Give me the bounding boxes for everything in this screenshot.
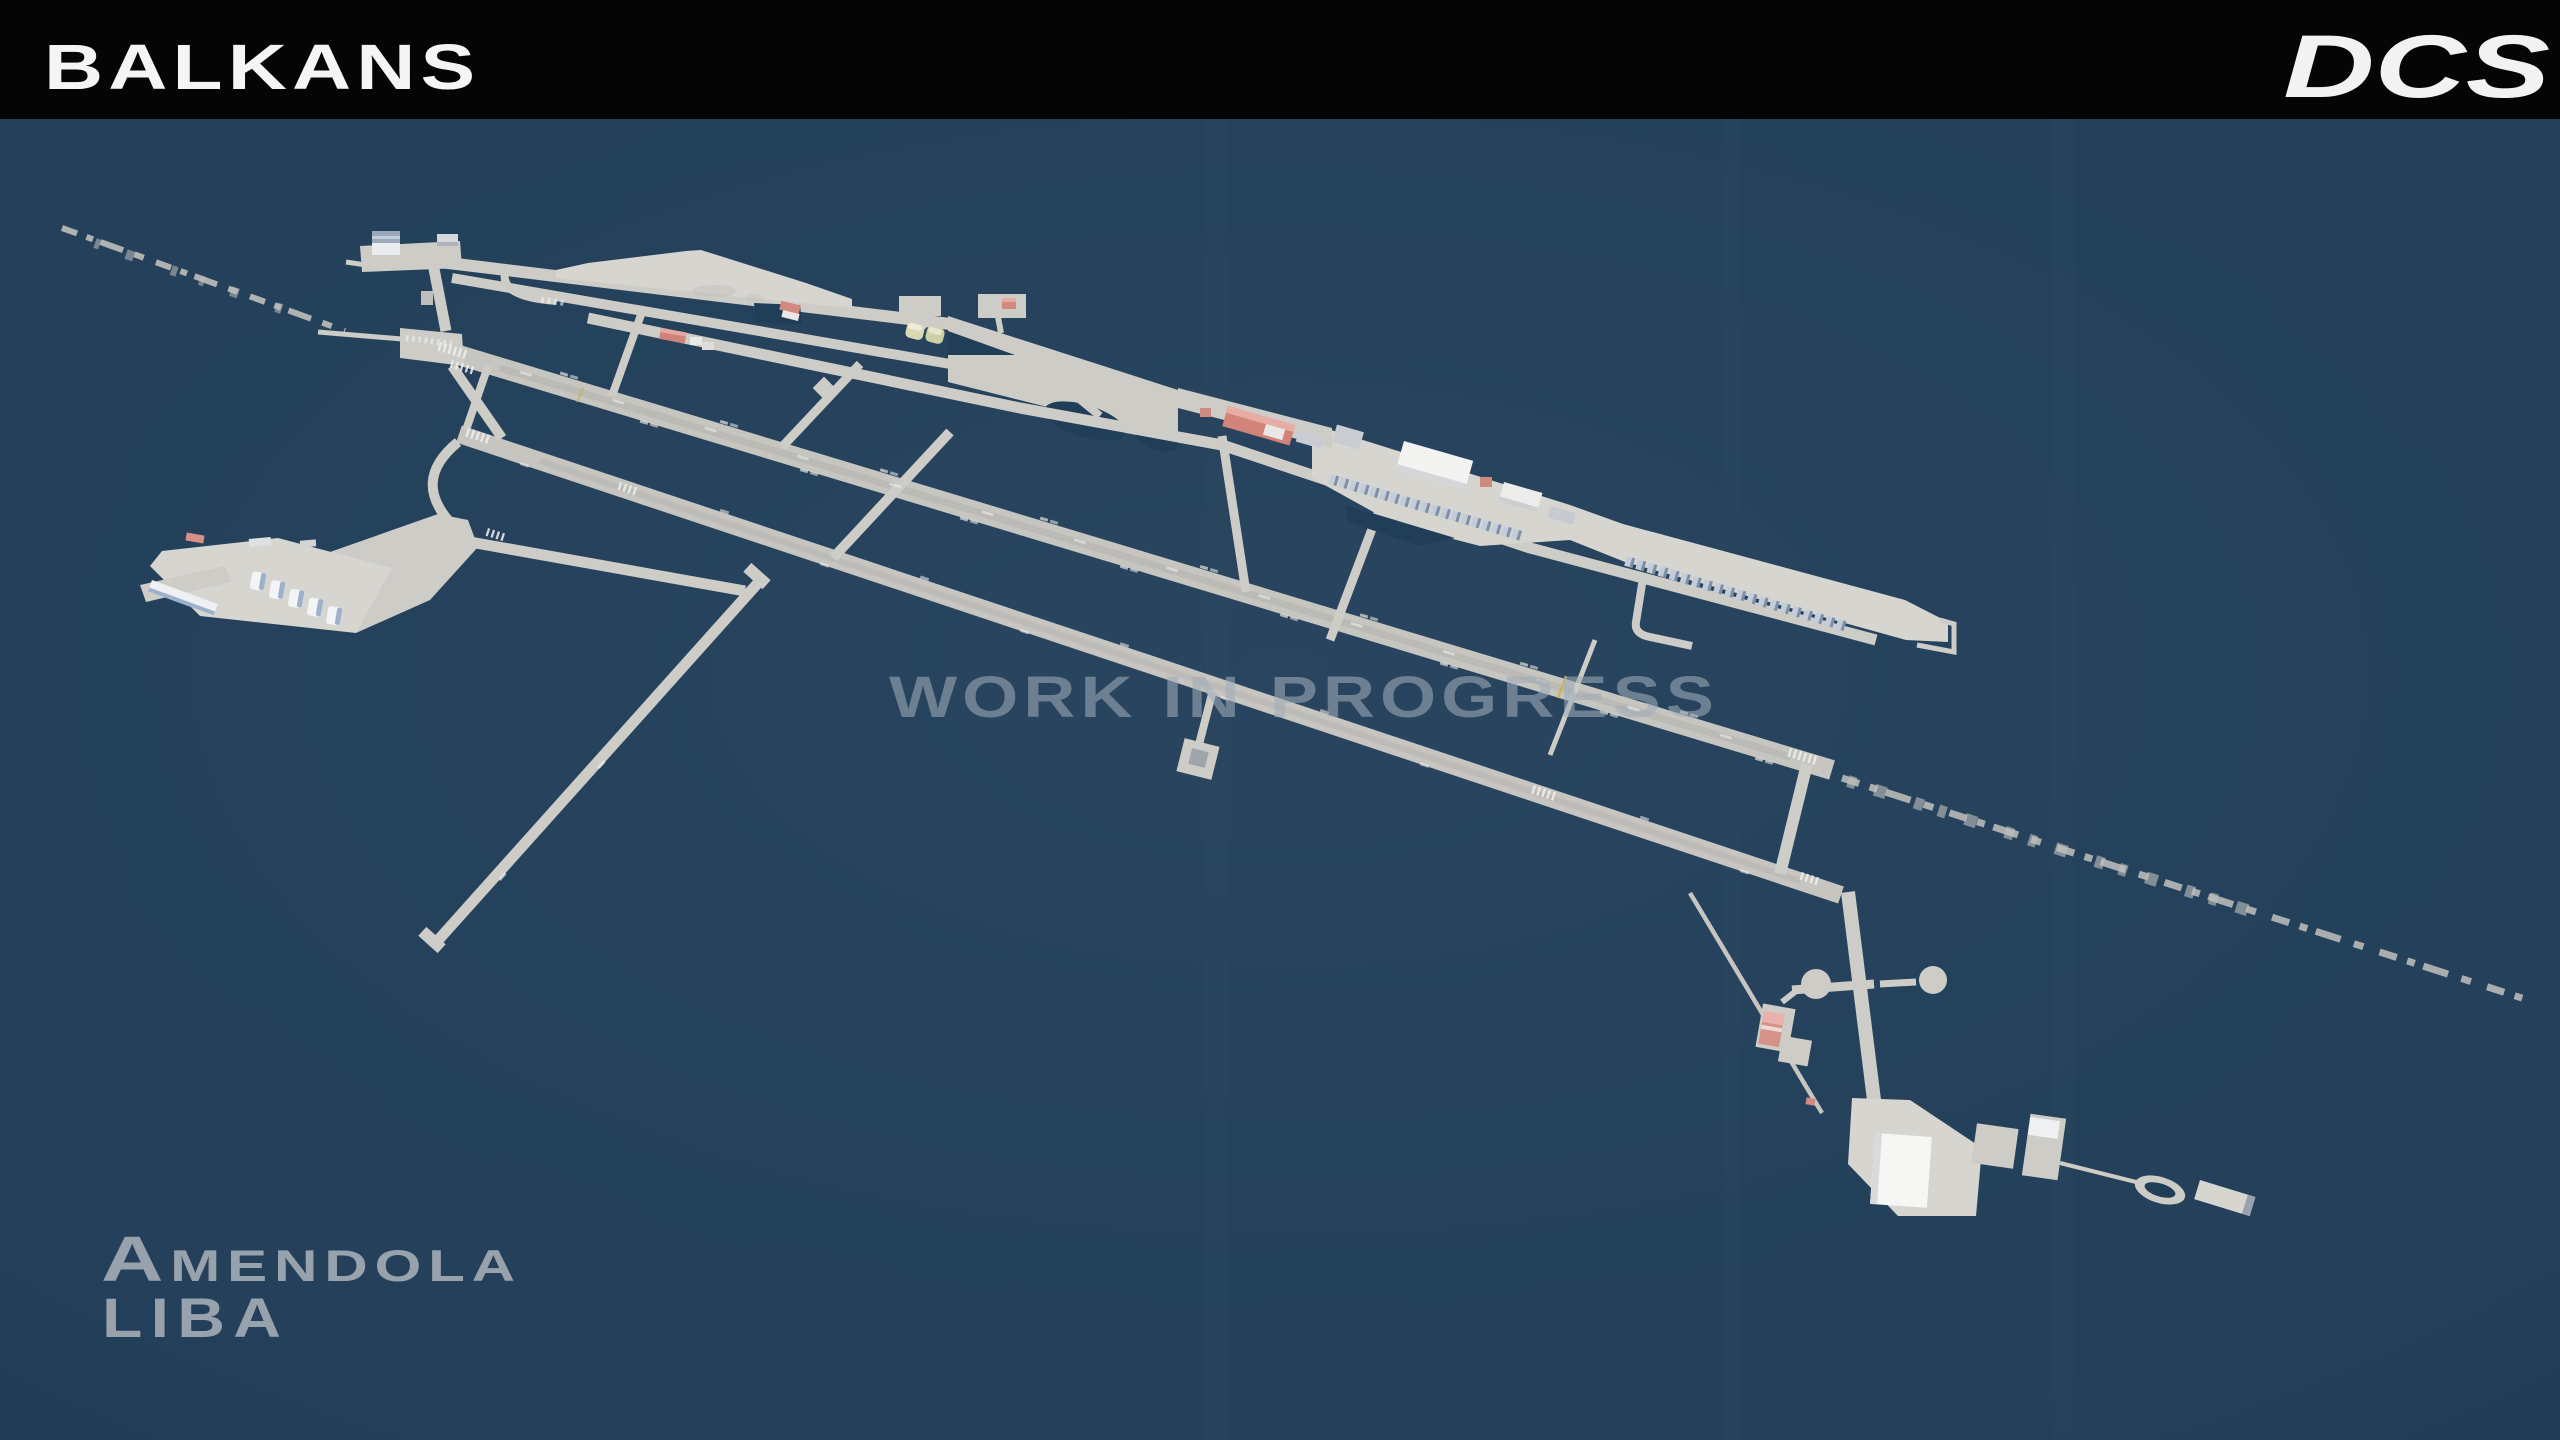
- svg-text:WORK IN PROGRESS: WORK IN PROGRESS: [889, 665, 1719, 730]
- svg-text:BALKANS: BALKANS: [44, 31, 480, 103]
- svg-text:LIBA: LIBA: [102, 1287, 289, 1349]
- svg-text:Amendola: Amendola: [101, 1224, 522, 1296]
- svg-text:DCS: DCS: [2283, 17, 2550, 116]
